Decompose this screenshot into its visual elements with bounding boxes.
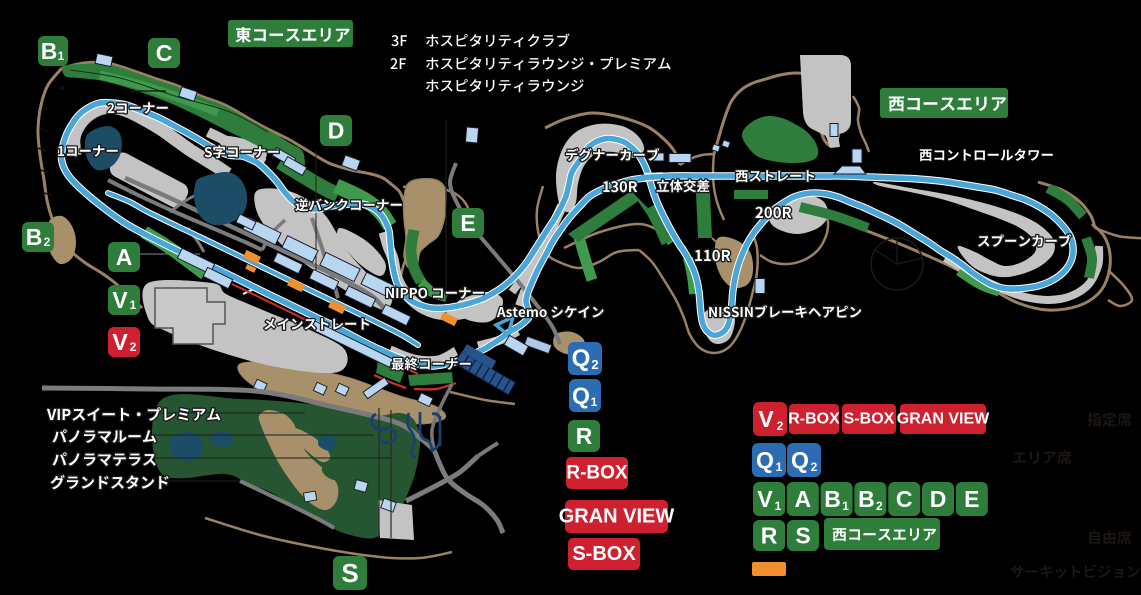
svg-text:2: 2 bbox=[876, 499, 883, 513]
svg-text:S: S bbox=[341, 558, 358, 588]
svg-text:V: V bbox=[757, 486, 773, 512]
svg-text:R-BOX: R-BOX bbox=[566, 463, 628, 484]
svg-text:R-BOX: R-BOX bbox=[788, 411, 840, 428]
svg-text:2: 2 bbox=[591, 357, 598, 372]
svg-text:A: A bbox=[116, 244, 133, 270]
svg-text:1: 1 bbox=[130, 298, 137, 312]
svg-text:1: 1 bbox=[58, 49, 65, 63]
svg-text:S-BOX: S-BOX bbox=[572, 543, 636, 565]
svg-text:Q: Q bbox=[756, 447, 774, 473]
svg-text:V: V bbox=[758, 406, 774, 432]
svg-text:S-BOX: S-BOX bbox=[844, 411, 895, 428]
svg-text:2: 2 bbox=[811, 460, 818, 474]
svg-text:GRAN VIEW: GRAN VIEW bbox=[897, 411, 990, 428]
svg-text:B: B bbox=[858, 486, 875, 512]
svg-text:C: C bbox=[896, 486, 913, 512]
svg-text:B: B bbox=[824, 486, 841, 512]
svg-text:B: B bbox=[26, 224, 43, 250]
svg-text:1: 1 bbox=[776, 460, 783, 474]
svg-text:GRAN VIEW: GRAN VIEW bbox=[559, 506, 675, 528]
svg-text:S: S bbox=[795, 523, 810, 549]
svg-text:Q: Q bbox=[572, 383, 590, 409]
svg-text:A: A bbox=[794, 486, 811, 512]
svg-text:R: R bbox=[761, 523, 778, 549]
svg-text:V: V bbox=[112, 329, 128, 355]
svg-text:D: D bbox=[930, 486, 947, 512]
svg-text:R: R bbox=[576, 423, 593, 449]
svg-text:2: 2 bbox=[777, 419, 784, 433]
svg-text:V: V bbox=[112, 287, 128, 313]
svg-text:1: 1 bbox=[591, 395, 598, 409]
svg-text:1: 1 bbox=[775, 499, 782, 513]
svg-text:E: E bbox=[964, 486, 979, 512]
svg-text:Q: Q bbox=[791, 447, 809, 473]
svg-text:2: 2 bbox=[44, 235, 51, 249]
svg-text:D: D bbox=[328, 118, 345, 144]
svg-text:2: 2 bbox=[130, 340, 137, 354]
svg-text:1: 1 bbox=[842, 499, 849, 513]
svg-text:Q: Q bbox=[572, 345, 591, 372]
svg-text:E: E bbox=[460, 210, 475, 236]
svg-text:C: C bbox=[156, 40, 173, 66]
svg-text:B: B bbox=[41, 38, 58, 64]
